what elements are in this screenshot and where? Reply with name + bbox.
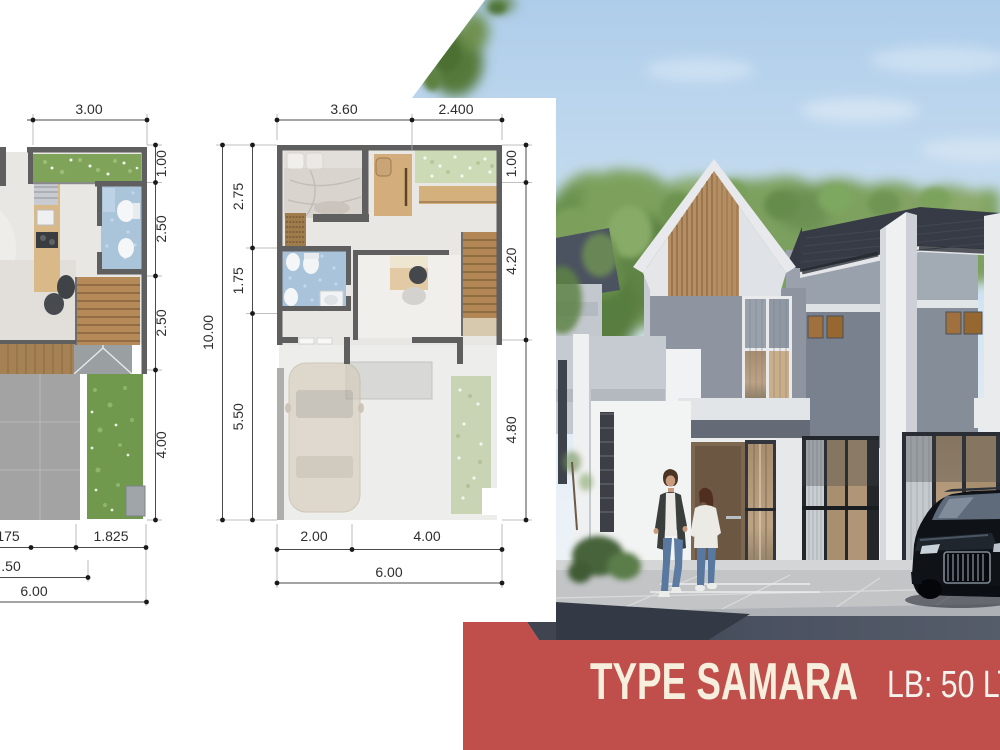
svg-text:LB: 50 LT: 60: LB: 50 LT: 60	[887, 664, 1000, 706]
svg-text:2.400: 2.400	[438, 101, 473, 117]
svg-text:1.00: 1.00	[153, 150, 169, 177]
svg-text:4.80: 4.80	[503, 416, 519, 443]
svg-text:1.00: 1.00	[503, 150, 519, 177]
svg-text:3.00: 3.00	[75, 101, 102, 117]
svg-text:2.50: 2.50	[153, 309, 169, 336]
svg-text:5.50: 5.50	[230, 403, 246, 430]
svg-text:2.00: 2.00	[300, 528, 327, 544]
svg-text:.50: .50	[1, 558, 21, 574]
svg-text:10.00: 10.00	[200, 315, 216, 350]
svg-text:4.00: 4.00	[153, 431, 169, 458]
svg-text:4.00: 4.00	[413, 528, 440, 544]
svg-text:4.20: 4.20	[503, 247, 519, 274]
svg-text:3.60: 3.60	[330, 101, 357, 117]
svg-text:6.00: 6.00	[20, 583, 47, 599]
svg-text:1.75: 1.75	[230, 267, 246, 294]
svg-text:6.00: 6.00	[375, 564, 402, 580]
svg-text:175: 175	[0, 528, 20, 544]
svg-text:1.825: 1.825	[93, 528, 128, 544]
svg-text:2.50: 2.50	[153, 215, 169, 242]
svg-text:TYPE SAMARA: TYPE SAMARA	[590, 653, 858, 711]
svg-text:2.75: 2.75	[230, 183, 246, 210]
